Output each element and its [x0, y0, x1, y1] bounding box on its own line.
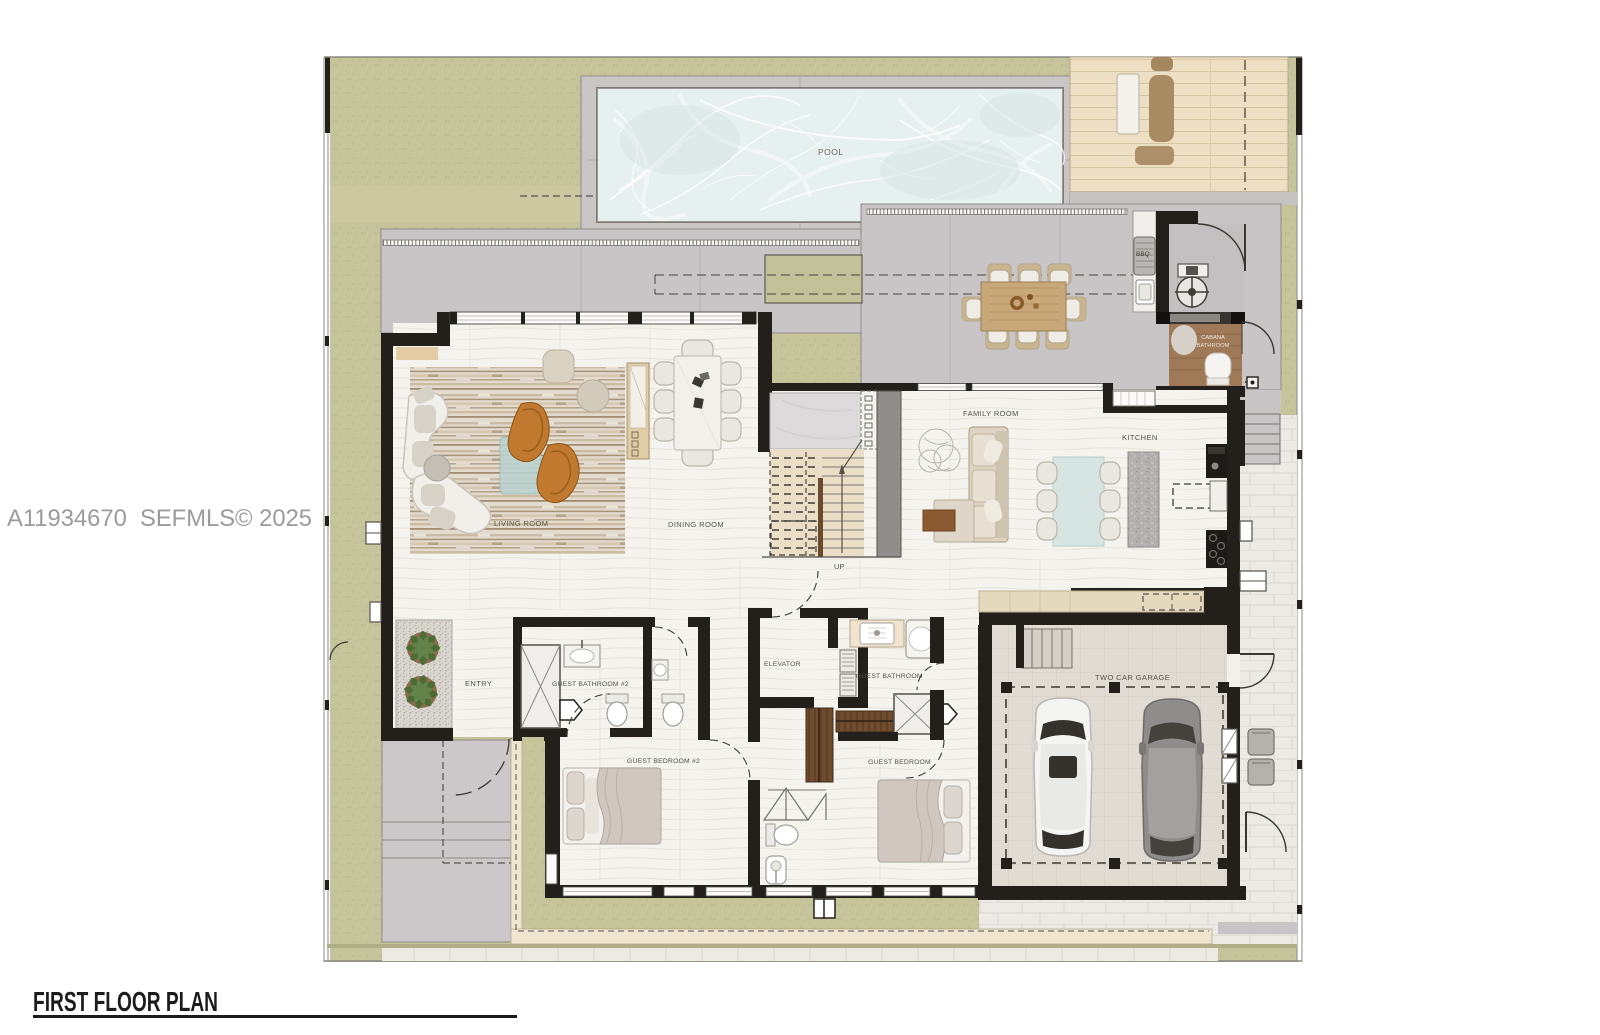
svg-text:A11934670 SEFMLS© 2025: A11934670 SEFMLS© 2025 [7, 505, 312, 532]
svg-text:POOL: POOL [818, 147, 844, 157]
svg-text:ELEVATOR: ELEVATOR [764, 661, 801, 668]
svg-text:GUEST BATHROOM #2: GUEST BATHROOM #2 [552, 681, 629, 688]
svg-text:FIRST FLOOR PLAN: FIRST FLOOR PLAN [33, 986, 218, 1017]
svg-text:KITCHEN: KITCHEN [1122, 433, 1158, 442]
svg-text:LIVING ROOM: LIVING ROOM [494, 519, 548, 528]
svg-text:ENTRY: ENTRY [465, 679, 492, 688]
svg-text:BBQ: BBQ [1136, 251, 1150, 258]
svg-text:GUEST BEDROOM: GUEST BEDROOM [868, 759, 931, 766]
svg-text:BATHROOM: BATHROOM [1196, 343, 1229, 349]
svg-text:GUEST BEDROOM #2: GUEST BEDROOM #2 [627, 758, 700, 765]
svg-text:FAMILY ROOM: FAMILY ROOM [963, 409, 1019, 418]
svg-text:CABANA: CABANA [1201, 335, 1225, 341]
svg-text:GUEST BATHROOM: GUEST BATHROOM [856, 673, 923, 680]
svg-text:UP: UP [834, 562, 844, 571]
svg-text:TWO CAR GARAGE: TWO CAR GARAGE [1095, 673, 1170, 682]
svg-text:DINING ROOM: DINING ROOM [668, 520, 724, 529]
